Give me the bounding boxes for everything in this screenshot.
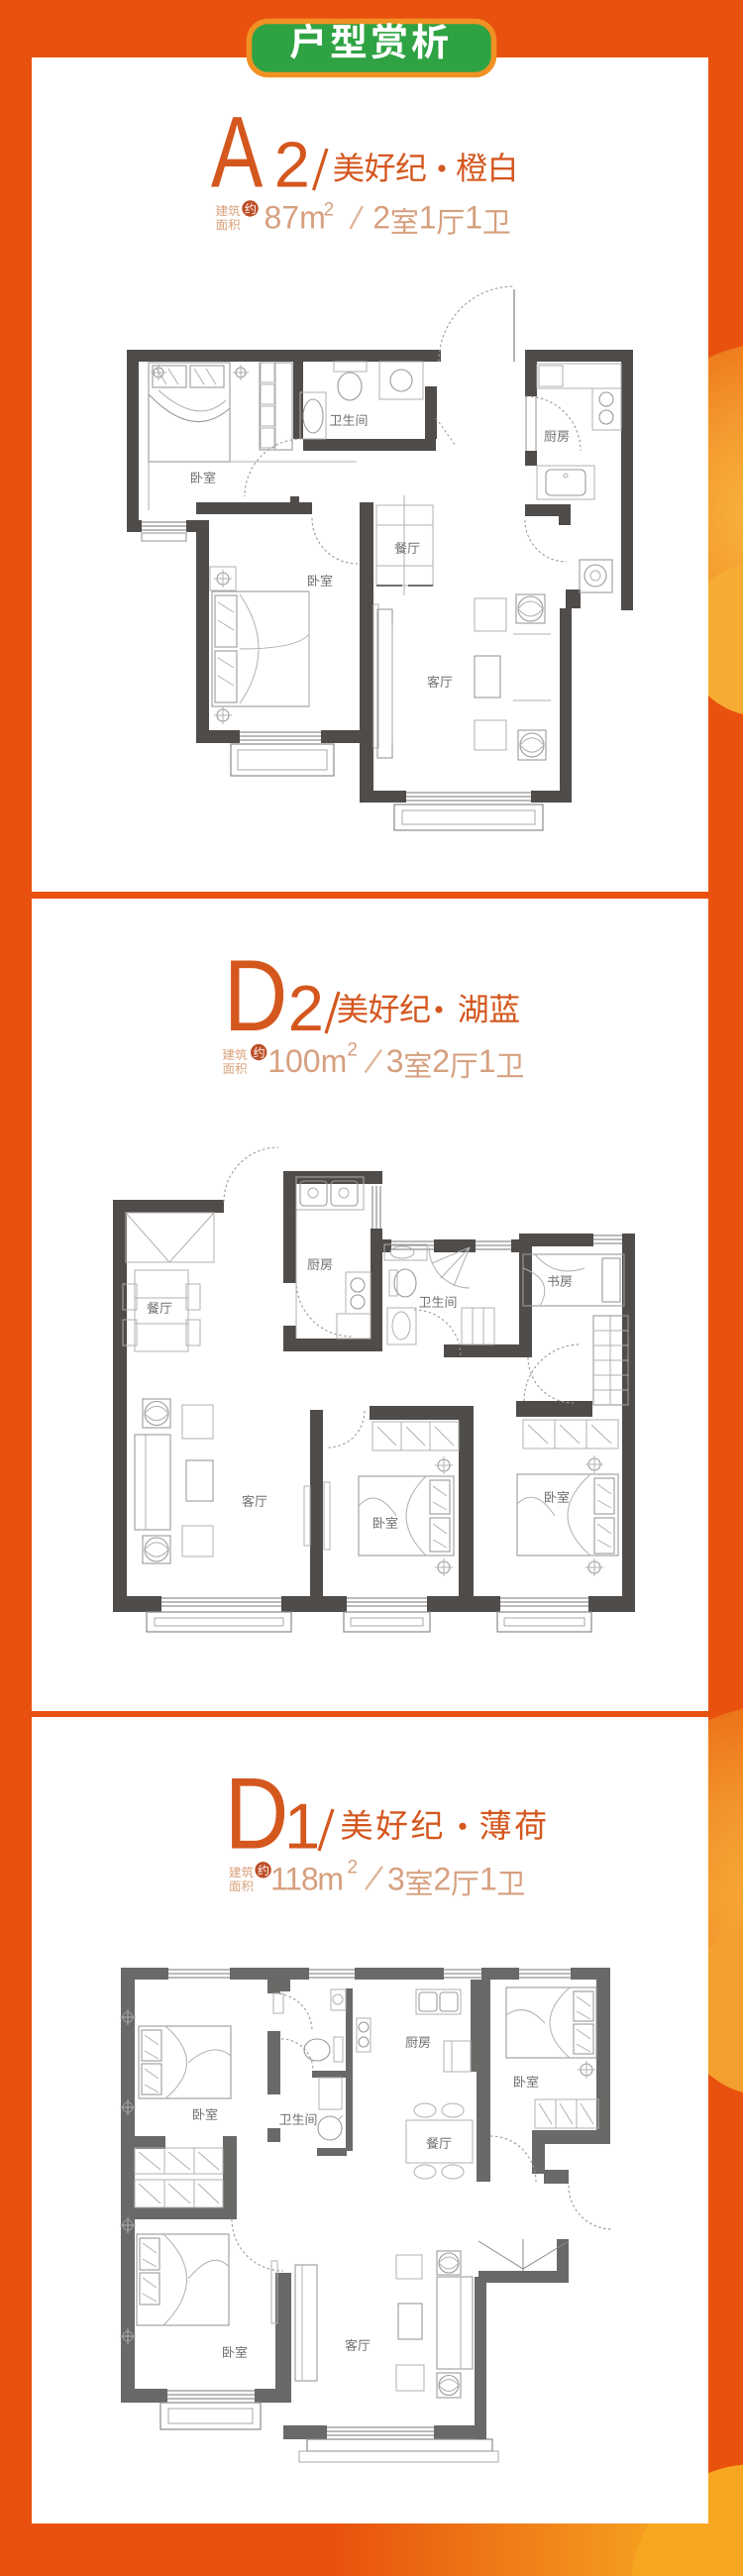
svg-text:118m: 118m: [270, 1861, 343, 1896]
svg-text:D: D: [225, 1758, 289, 1871]
svg-text:2: 2: [432, 1043, 450, 1079]
svg-text:2: 2: [347, 1040, 358, 1061]
svg-text:2: 2: [372, 199, 390, 235]
svg-text:2: 2: [274, 129, 310, 201]
svg-text:3: 3: [387, 1861, 405, 1896]
svg-text:1: 1: [419, 199, 437, 235]
svg-text:87m: 87m: [265, 199, 326, 235]
svg-text:1: 1: [284, 1789, 320, 1862]
svg-text:100m: 100m: [267, 1043, 347, 1079]
svg-text:1: 1: [478, 1043, 496, 1079]
svg-text:D: D: [224, 940, 288, 1053]
svg-text:2: 2: [434, 1861, 452, 1896]
svg-text:1: 1: [465, 199, 482, 235]
svg-text:2: 2: [324, 200, 335, 221]
svg-text:2: 2: [348, 1858, 359, 1878]
svg-text:1: 1: [479, 1861, 497, 1896]
svg-text:2: 2: [288, 972, 324, 1044]
svg-text:3: 3: [386, 1043, 404, 1079]
svg-text:A: A: [211, 97, 264, 209]
